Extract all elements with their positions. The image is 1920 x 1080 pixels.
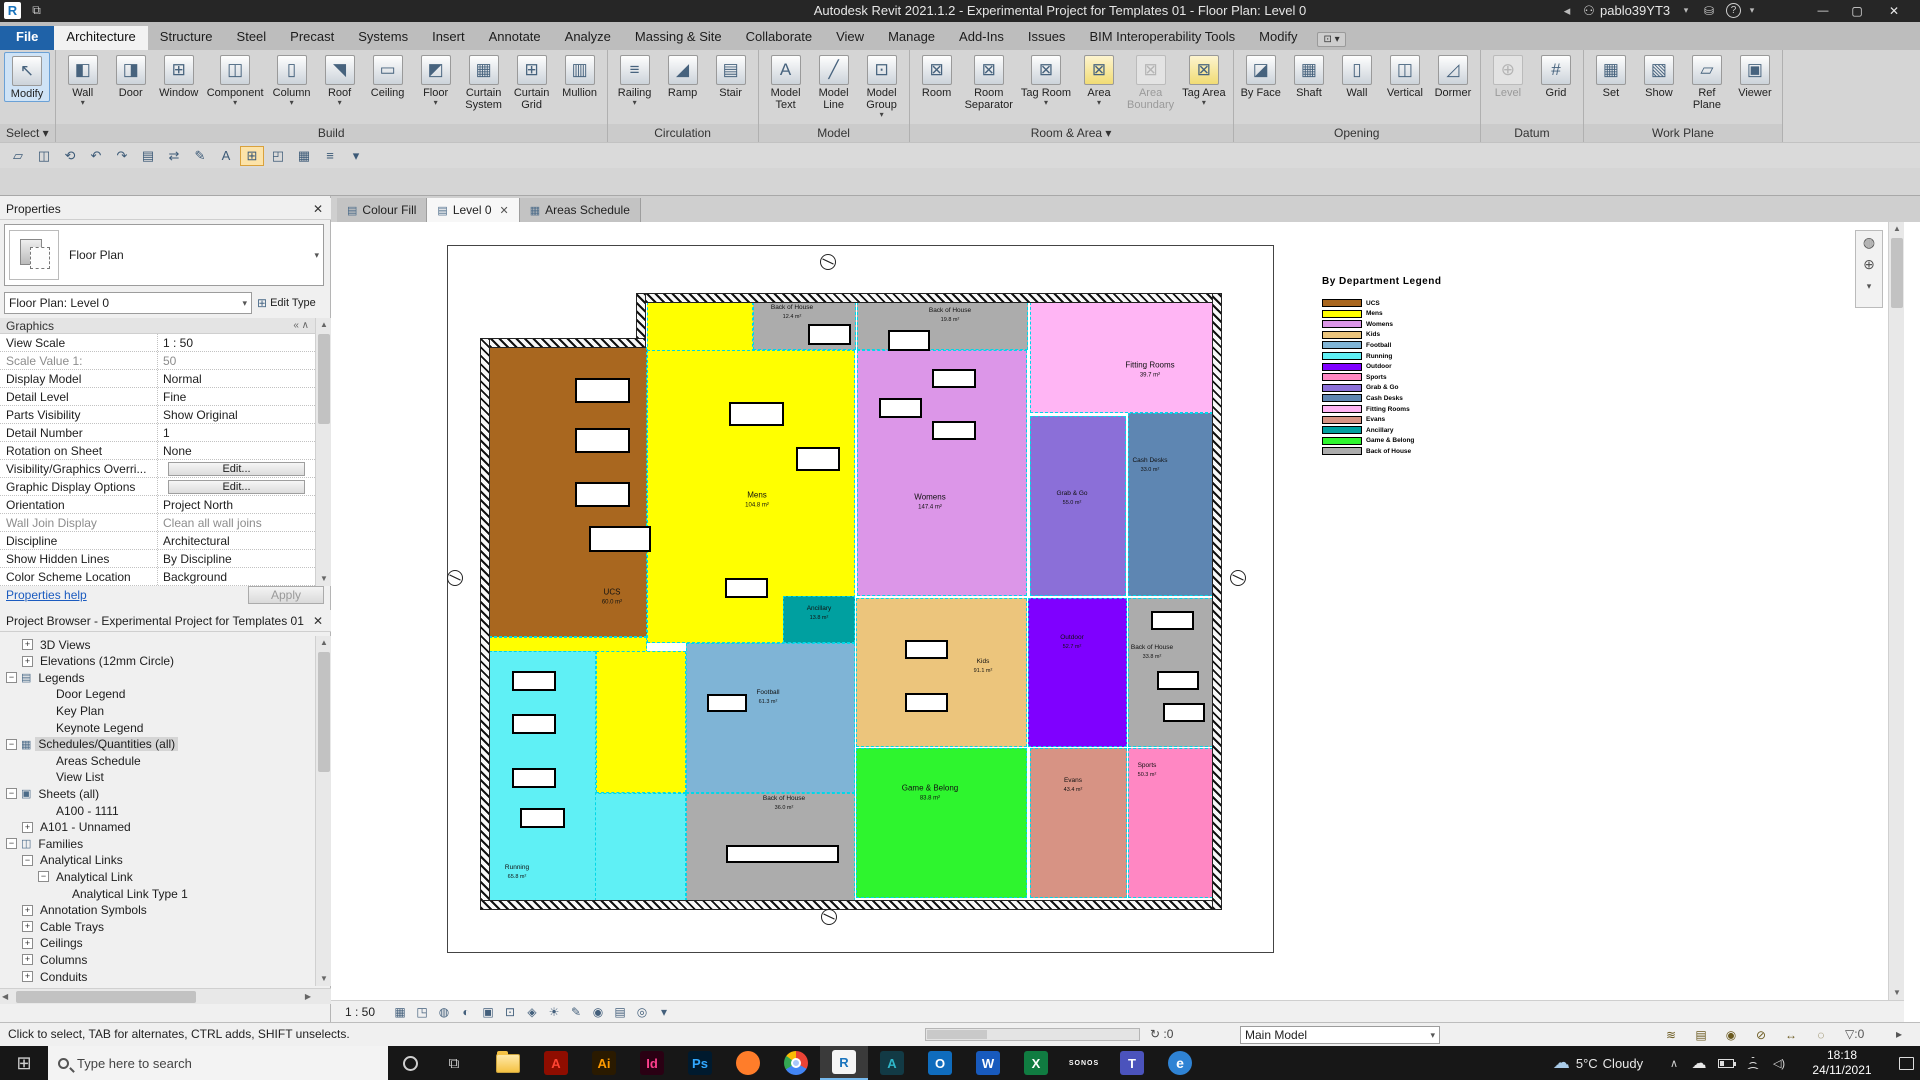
area-value: 104.8 m² bbox=[745, 502, 769, 511]
taskbar-app-firefox[interactable] bbox=[724, 1046, 772, 1080]
user-caret-icon[interactable]: ▾ bbox=[1680, 2, 1692, 19]
property-value[interactable]: Architectural bbox=[158, 532, 315, 549]
grid-button[interactable]: #Grid bbox=[1533, 52, 1579, 100]
qat-icon-7[interactable]: ✎ bbox=[188, 146, 212, 166]
property-value[interactable]: 1 : 50 bbox=[158, 334, 315, 351]
ribbon-panel-label[interactable]: Datum bbox=[1481, 124, 1583, 142]
browser-item-annotation-symbols[interactable]: +Annotation Symbols bbox=[22, 902, 337, 919]
dropdown-caret-icon[interactable]: ▾ bbox=[338, 99, 342, 106]
taskbar-app-acrobat[interactable]: A bbox=[532, 1046, 580, 1080]
edit-button[interactable]: Edit... bbox=[168, 480, 305, 494]
dropdown-caret-icon[interactable]: ▾ bbox=[1044, 99, 1048, 106]
taskbar-app-illustrator[interactable]: Ai bbox=[580, 1046, 628, 1080]
dropdown-caret-icon[interactable]: ▾ bbox=[633, 99, 637, 106]
ribbon-panel-label[interactable]: Work Plane bbox=[1584, 124, 1782, 142]
collapse-icons[interactable]: « ∧ bbox=[293, 318, 309, 334]
browser-item-cable-trays[interactable]: +Cable Trays bbox=[22, 918, 337, 935]
status-icon-5[interactable]: ◌ bbox=[1810, 1026, 1832, 1044]
fixture-rect[interactable] bbox=[888, 330, 930, 351]
area-label: Kids91.1 m² bbox=[974, 657, 993, 675]
browser-item-view-list[interactable]: View List bbox=[38, 769, 353, 786]
browser-item-analytical-link[interactable]: −Analytical Link bbox=[38, 868, 353, 885]
ribbon-tab-add-ins[interactable]: Add-Ins bbox=[947, 26, 1016, 50]
browser-item-analytical-links[interactable]: −Analytical Links bbox=[22, 852, 337, 869]
fixture-rect[interactable] bbox=[729, 402, 784, 426]
property-row: Color Scheme LocationBackground bbox=[0, 568, 315, 586]
selection-filter[interactable]: ▽:0 bbox=[1845, 1027, 1885, 1043]
battery-icon[interactable] bbox=[1712, 1046, 1740, 1080]
status-icon-2[interactable]: ◉ bbox=[1720, 1026, 1742, 1044]
edit-button[interactable]: Edit... bbox=[168, 462, 305, 476]
ribbon-panel-label[interactable]: Room & Area ▾ bbox=[910, 124, 1233, 142]
dropdown-caret-icon[interactable]: ▾ bbox=[880, 111, 884, 118]
plan-area[interactable] bbox=[596, 651, 686, 793]
scroll-down-icon[interactable]: ▼ bbox=[316, 972, 332, 986]
start-button[interactable]: ⊞ bbox=[0, 1046, 48, 1080]
taskbar-app-word[interactable]: W bbox=[964, 1046, 1012, 1080]
taskbar-app-photoshop[interactable]: Ps bbox=[676, 1046, 724, 1080]
floor-button[interactable]: ◩Floor▾ bbox=[413, 52, 459, 107]
ribbon-tab-analyze[interactable]: Analyze bbox=[553, 26, 623, 50]
scroll-left-icon[interactable]: ◀ bbox=[2, 992, 8, 1001]
cart-icon[interactable]: ⛁ bbox=[1700, 2, 1718, 19]
dormer-button[interactable]: ◿Dormer bbox=[1430, 52, 1476, 100]
ribbon-tab-steel[interactable]: Steel bbox=[225, 26, 279, 50]
expand-toggle[interactable]: − bbox=[22, 855, 33, 866]
vcb-icon-4[interactable]: ▣ bbox=[478, 1003, 498, 1021]
plan-area-football[interactable] bbox=[686, 643, 855, 793]
cloud-icon: ☁ bbox=[1553, 1053, 1570, 1073]
ribbon-tab-annotate[interactable]: Annotate bbox=[477, 26, 553, 50]
room-button[interactable]: ⊠Room bbox=[914, 52, 960, 100]
ribbon-tab-issues[interactable]: Issues bbox=[1016, 26, 1078, 50]
legend-swatch bbox=[1322, 426, 1362, 434]
legend-entry: Evans bbox=[1322, 415, 1472, 425]
railing-button[interactable]: ≡Railing▾ bbox=[612, 52, 658, 107]
expand-toggle[interactable]: + bbox=[22, 905, 33, 916]
qat-icon-11[interactable]: ▦ bbox=[292, 146, 316, 166]
expand-toggle[interactable]: + bbox=[22, 938, 33, 949]
zoom-icon[interactable]: ⊕ bbox=[1857, 253, 1881, 275]
mullion-button[interactable]: ▥Mullion bbox=[557, 52, 603, 100]
vcb-icon-2[interactable]: ◍ bbox=[434, 1003, 454, 1021]
browser-hscrollbar[interactable]: ◀▶ bbox=[0, 988, 331, 1004]
shaft-button[interactable]: ▦Shaft bbox=[1286, 52, 1332, 100]
qat-icon-10[interactable]: ◰ bbox=[266, 146, 290, 166]
qat-icon-0[interactable]: ▱ bbox=[6, 146, 30, 166]
ribbon-tab-structure[interactable]: Structure bbox=[148, 26, 225, 50]
wall-button[interactable]: ▯Wall bbox=[1334, 52, 1380, 100]
chevron-down-icon[interactable]: ▾ bbox=[314, 250, 319, 261]
cortana-button[interactable] bbox=[388, 1046, 432, 1080]
expand-toggle[interactable]: + bbox=[22, 639, 33, 650]
area-name: Womens bbox=[914, 492, 945, 504]
vcb-icon-5[interactable]: ⊡ bbox=[500, 1003, 520, 1021]
modify-pulldown[interactable]: ⊡ ▾ bbox=[1317, 32, 1345, 47]
status-icon-1[interactable]: ▤ bbox=[1690, 1026, 1712, 1044]
plan-area-cash-desks[interactable] bbox=[1128, 413, 1213, 596]
plan-area-fitting-rooms[interactable] bbox=[1030, 302, 1213, 413]
elevation-marker[interactable] bbox=[1230, 570, 1246, 586]
properties-scrollbar[interactable]: ▲▼ bbox=[315, 318, 331, 586]
browser-item-key-plan[interactable]: Key Plan bbox=[38, 702, 353, 719]
search-box[interactable]: Type here to search bbox=[48, 1046, 388, 1080]
ribbon-tab-insert[interactable]: Insert bbox=[420, 26, 477, 50]
scroll-thumb[interactable] bbox=[1891, 238, 1903, 308]
expand-toggle[interactable]: − bbox=[6, 739, 17, 750]
expand-toggle[interactable]: + bbox=[22, 971, 33, 982]
ribbon-tab-modify[interactable]: Modify bbox=[1247, 26, 1309, 50]
area-value: 147.4 m² bbox=[914, 504, 945, 513]
properties-help-link[interactable]: Properties help bbox=[6, 588, 126, 604]
volume-icon[interactable]: ◁) bbox=[1766, 1046, 1792, 1080]
door-button[interactable]: ◨Door bbox=[108, 52, 154, 100]
property-value[interactable]: None bbox=[158, 442, 315, 459]
property-value[interactable]: Project North bbox=[158, 496, 315, 513]
vcb-icon-9[interactable]: ◉ bbox=[588, 1003, 608, 1021]
view-tab-level-0[interactable]: ▤Level 0✕ bbox=[427, 198, 519, 222]
chevron-down-icon[interactable]: ▾ bbox=[242, 298, 247, 309]
qat-icon-5[interactable]: ▤ bbox=[136, 146, 160, 166]
taskbar-app-indesign[interactable]: Id bbox=[628, 1046, 676, 1080]
browser-item-conduits[interactable]: +Conduits bbox=[22, 968, 337, 985]
ceiling-button[interactable]: ▭Ceiling bbox=[365, 52, 411, 100]
ribbon-tab-systems[interactable]: Systems bbox=[346, 26, 420, 50]
legend-swatch bbox=[1322, 320, 1362, 328]
viewer-button[interactable]: ▣Viewer bbox=[1732, 52, 1778, 100]
tag-area-button[interactable]: ⊠Tag Area▾ bbox=[1179, 52, 1228, 107]
expand-toggle[interactable]: − bbox=[6, 788, 17, 799]
model-line-button[interactable]: ╱ModelLine bbox=[811, 52, 857, 112]
elevation-marker[interactable] bbox=[821, 909, 837, 925]
taskbar-app-outlook[interactable]: O bbox=[916, 1046, 964, 1080]
task-view-button[interactable]: ⧉ bbox=[432, 1046, 476, 1080]
elevation-marker[interactable] bbox=[820, 254, 836, 270]
fixture-rect[interactable] bbox=[905, 640, 948, 659]
canvas-scrollbar[interactable]: ▲▼ bbox=[1888, 222, 1904, 1000]
weather-widget[interactable]: ☁5°CCloudy bbox=[1536, 1046, 1660, 1080]
property-label: Wall Join Display bbox=[0, 514, 158, 531]
help-icon[interactable]: ? bbox=[1726, 3, 1741, 18]
close-icon[interactable]: ✕ bbox=[313, 610, 323, 632]
fixture-rect[interactable] bbox=[905, 693, 948, 712]
design-options-select[interactable]: Main Model▾ bbox=[1240, 1026, 1440, 1044]
fixture-rect[interactable] bbox=[726, 845, 839, 863]
help-caret-icon[interactable]: ▾ bbox=[1746, 2, 1758, 19]
ribbon-panel-label[interactable]: Opening bbox=[1234, 124, 1480, 142]
wall-segment[interactable] bbox=[481, 339, 645, 347]
property-value[interactable]: Fine bbox=[158, 388, 315, 405]
ribbon-tab-file[interactable]: File bbox=[0, 26, 54, 50]
legend-swatch bbox=[1322, 394, 1362, 402]
scroll-up-icon[interactable]: ▲ bbox=[1889, 222, 1905, 236]
wall-segment[interactable] bbox=[481, 339, 489, 909]
property-value[interactable]: Background bbox=[158, 568, 315, 585]
area-button[interactable]: ⊠Area▾ bbox=[1076, 52, 1122, 107]
dropdown-caret-icon[interactable]: ▾ bbox=[233, 99, 237, 106]
expand-toggle[interactable]: − bbox=[6, 672, 17, 683]
taskbar-app-chrome[interactable] bbox=[772, 1046, 820, 1080]
ribbon-panel-room-area: ⊠Room⊠RoomSeparator⊠Tag Room▾⊠Area▾⊠Area… bbox=[910, 50, 1234, 142]
area-label: Sports50.3 m² bbox=[1138, 761, 1157, 779]
fixture-rect[interactable] bbox=[575, 428, 630, 453]
plan-area-kids[interactable] bbox=[856, 598, 1027, 747]
scroll-thumb[interactable] bbox=[318, 652, 330, 772]
app-icon-indesign: Id bbox=[640, 1051, 664, 1075]
steering-wheel-icon[interactable]: ◍ bbox=[1857, 231, 1881, 253]
vcb-icon-12[interactable]: ▾ bbox=[654, 1003, 674, 1021]
property-value[interactable]: 50 bbox=[158, 352, 315, 369]
plan-area-outdoor[interactable] bbox=[1028, 598, 1127, 747]
maximize-button[interactable]: ▢ bbox=[1840, 0, 1874, 22]
tray-chevron-icon[interactable]: ∧ bbox=[1662, 1046, 1686, 1080]
qat-icon-9[interactable]: ⊞ bbox=[240, 146, 264, 166]
ribbon-tab-massing-site[interactable]: Massing & Site bbox=[623, 26, 734, 50]
component-button[interactable]: ◫Component▾ bbox=[204, 52, 267, 107]
expand-toggle[interactable]: − bbox=[6, 838, 17, 849]
taskbar-app-autocad[interactable]: A bbox=[868, 1046, 916, 1080]
view-selector[interactable]: Floor Plan: Level 0▾ bbox=[4, 292, 252, 314]
scroll-down-icon[interactable]: ▼ bbox=[1889, 986, 1905, 1000]
browser-item-a100-1111[interactable]: A100 - 1111 bbox=[38, 802, 353, 819]
curtain-system-button[interactable]: ▦CurtainSystem bbox=[461, 52, 507, 112]
window-button[interactable]: ⊞Window bbox=[156, 52, 202, 100]
app-icon-revit: R bbox=[832, 1050, 856, 1074]
area-label: Football61.3 m² bbox=[756, 688, 779, 706]
ribbon-panel-label[interactable]: Build bbox=[56, 124, 607, 142]
browser-item-schedules-quantities-all-[interactable]: −▦Schedules/Quantities (all) bbox=[6, 736, 321, 753]
stair-button[interactable]: ▤Stair bbox=[708, 52, 754, 100]
revit-application-window: R⧉Autodesk Revit 2021.1.2 - Experimental… bbox=[0, 0, 1920, 1080]
plan-area-evans[interactable] bbox=[1030, 748, 1127, 898]
property-value[interactable]: Normal bbox=[158, 370, 315, 387]
taskbar-app-teams[interactable]: T bbox=[1108, 1046, 1156, 1080]
qat-icon-3[interactable]: ↶ bbox=[84, 146, 108, 166]
expand-toggle[interactable]: + bbox=[22, 822, 33, 833]
expand-toggle[interactable]: + bbox=[22, 656, 33, 667]
model-text-button[interactable]: AModelText bbox=[763, 52, 809, 112]
nav-caret-icon[interactable]: ▾ bbox=[1857, 275, 1881, 297]
status-icon-3[interactable]: ⊘ bbox=[1750, 1026, 1772, 1044]
browser-item-label: Analytical Link bbox=[53, 870, 136, 884]
dropdown-caret-icon[interactable]: ▾ bbox=[434, 99, 438, 106]
close-button[interactable]: ✕ bbox=[1874, 0, 1914, 22]
clock-widget[interactable]: 18:1824/11/2021 bbox=[1792, 1046, 1892, 1080]
status-icon-4[interactable]: ↔ bbox=[1780, 1026, 1802, 1044]
ribbon-tab-collaborate[interactable]: Collaborate bbox=[734, 26, 825, 50]
scroll-down-icon[interactable]: ▼ bbox=[316, 572, 332, 586]
browser-item-legends[interactable]: −▤Legends bbox=[6, 669, 321, 686]
scroll-thumb[interactable] bbox=[16, 991, 196, 1003]
onedrive-icon[interactable]: ☁ bbox=[1686, 1046, 1712, 1080]
fixture-rect[interactable] bbox=[707, 694, 747, 712]
ribbon-tab-bim-interoperability-tools[interactable]: BIM Interoperability Tools bbox=[1077, 26, 1247, 50]
expand-toggle[interactable]: + bbox=[22, 954, 33, 965]
editing-requests[interactable]: ↻ :0 bbox=[1150, 1027, 1210, 1043]
qat-icon-13[interactable]: ▾ bbox=[344, 146, 368, 166]
dropdown-caret-icon[interactable]: ▾ bbox=[1097, 99, 1101, 106]
tag-room-button[interactable]: ⊠Tag Room▾ bbox=[1018, 52, 1074, 107]
by-face-button[interactable]: ◪By Face bbox=[1238, 52, 1284, 100]
browser-item-families[interactable]: −◫Families bbox=[6, 835, 321, 852]
fixture-rect[interactable] bbox=[932, 369, 976, 388]
fixture-rect[interactable] bbox=[796, 447, 840, 471]
taskbar-app-sonos[interactable]: SONOS bbox=[1060, 1046, 1108, 1080]
area-value: 36.0 m² bbox=[763, 804, 805, 812]
close-icon[interactable]: ✕ bbox=[313, 198, 323, 220]
wall-segment[interactable] bbox=[637, 294, 1221, 302]
wall-button[interactable]: ◧Wall▾ bbox=[60, 52, 106, 107]
ribbon-panel-label[interactable]: Model bbox=[759, 124, 909, 142]
browser-item-a101-unnamed[interactable]: +A101 - Unnamed bbox=[22, 819, 337, 836]
browser-item-elevations-12mm-circle-[interactable]: +Elevations (12mm Circle) bbox=[22, 653, 337, 670]
plan-area[interactable] bbox=[647, 302, 753, 352]
ribbon-panel-label[interactable]: Select ▾ bbox=[0, 124, 55, 142]
property-value[interactable]: Clean all wall joins bbox=[158, 514, 315, 531]
fixture-rect[interactable] bbox=[932, 421, 976, 440]
minimize-button[interactable]: — bbox=[1806, 0, 1840, 22]
taskbar-app-file-explorer[interactable] bbox=[484, 1046, 532, 1080]
ramp-button[interactable]: ◢Ramp bbox=[660, 52, 706, 100]
wifi-icon[interactable] bbox=[1740, 1046, 1766, 1080]
taskbar-app-excel[interactable]: X bbox=[1012, 1046, 1060, 1080]
area-name: Cash Desks bbox=[1132, 456, 1167, 466]
property-value[interactable]: By Discipline bbox=[158, 550, 315, 567]
fixture-rect[interactable] bbox=[1163, 703, 1205, 722]
browser-item-sheets-all-[interactable]: −▣Sheets (all) bbox=[6, 785, 321, 802]
legend-swatch bbox=[1322, 416, 1362, 424]
qat-icon-6[interactable]: ⇄ bbox=[162, 146, 186, 166]
vcb-icon-1[interactable]: ◳ bbox=[412, 1003, 432, 1021]
column-button[interactable]: ▯Column▾ bbox=[269, 52, 315, 107]
fixture-rect[interactable] bbox=[589, 526, 651, 552]
drawing-canvas[interactable]: UCS60.0 m²Mens104.8 m²Womens147.4 m²Back… bbox=[331, 222, 1904, 1000]
scroll-up-icon[interactable]: ▲ bbox=[316, 636, 332, 650]
browser-scrollbar[interactable]: ▲▼ bbox=[315, 636, 331, 986]
qat-icon-4[interactable]: ↷ bbox=[110, 146, 134, 166]
door-icon: ◨ bbox=[116, 55, 146, 85]
vcb-icon-0[interactable]: ▦ bbox=[390, 1003, 410, 1021]
property-row: Scale Value 1:50 bbox=[0, 352, 315, 370]
signin-arrow-icon[interactable]: ◂ bbox=[1560, 2, 1574, 19]
vcb-icon-11[interactable]: ◎ bbox=[632, 1003, 652, 1021]
ribbon-tab-view[interactable]: View bbox=[824, 26, 876, 50]
browser-item-ceilings[interactable]: +Ceilings bbox=[22, 935, 337, 952]
qat-icon-1[interactable]: ◫ bbox=[32, 146, 56, 166]
browser-item-keynote-legend[interactable]: Keynote Legend bbox=[38, 719, 353, 736]
fixture-rect[interactable] bbox=[512, 671, 556, 691]
vcb-icon-10[interactable]: ▤ bbox=[610, 1003, 630, 1021]
fixture-rect[interactable] bbox=[512, 714, 556, 734]
area-value: 19.8 m² bbox=[929, 316, 971, 324]
model-group-button[interactable]: ⊡ModelGroup▾ bbox=[859, 52, 905, 119]
qat-icon-12[interactable]: ≡ bbox=[318, 146, 342, 166]
vcb-icon-7[interactable]: ☀ bbox=[544, 1003, 564, 1021]
qat-icon-8[interactable]: A bbox=[214, 146, 238, 166]
view-tab-colour-fill[interactable]: ▤Colour Fill bbox=[337, 198, 427, 222]
fixture-rect[interactable] bbox=[512, 768, 556, 788]
view-tab-areas-schedule[interactable]: ▦Areas Schedule bbox=[520, 198, 641, 222]
time-text: 18:18 bbox=[1827, 1048, 1857, 1063]
chevron-down-icon[interactable]: ▾ bbox=[1430, 1030, 1435, 1041]
people-icon[interactable]: ⚇ bbox=[1580, 2, 1598, 19]
fixture-rect[interactable] bbox=[575, 378, 630, 403]
qat-icon-2[interactable]: ⟲ bbox=[58, 146, 82, 166]
scroll-thumb[interactable] bbox=[318, 334, 330, 424]
vcb-icon-3[interactable]: ◐ bbox=[456, 1003, 476, 1021]
fixture-rect[interactable] bbox=[1157, 671, 1199, 690]
dropdown-caret-icon[interactable]: ▾ bbox=[81, 99, 85, 106]
fixture-rect[interactable] bbox=[575, 482, 630, 507]
elevation-marker[interactable] bbox=[447, 570, 463, 586]
type-name: Floor Plan bbox=[69, 248, 124, 262]
status-expander[interactable]: ▸ bbox=[1896, 1027, 1912, 1043]
edit-type-button[interactable]: ⊞Edit Type bbox=[256, 292, 326, 314]
dropdown-caret-icon[interactable]: ▾ bbox=[290, 99, 294, 106]
property-value[interactable]: Show Original bbox=[158, 406, 315, 423]
room-separator-button[interactable]: ⊠RoomSeparator bbox=[962, 52, 1016, 112]
browser-item-label: Analytical Links bbox=[37, 853, 126, 867]
scroll-thumb[interactable] bbox=[927, 1030, 987, 1039]
curtain-grid-button[interactable]: ⊞CurtainGrid bbox=[509, 52, 555, 112]
fixture-rect[interactable] bbox=[808, 324, 851, 345]
wall-segment[interactable] bbox=[481, 901, 1221, 909]
roof-button[interactable]: ◥Roof▾ bbox=[317, 52, 363, 107]
ribbon-tab-architecture[interactable]: Architecture bbox=[54, 26, 147, 50]
browser-item-areas-schedule[interactable]: Areas Schedule bbox=[38, 752, 353, 769]
expand-toggle[interactable]: + bbox=[22, 921, 33, 932]
browser-item-3d-views[interactable]: +3D Views bbox=[22, 636, 337, 653]
vcb-icon-8[interactable]: ✎ bbox=[566, 1003, 586, 1021]
taskbar-app-edge[interactable]: e bbox=[1156, 1046, 1204, 1080]
browser-item-columns[interactable]: +Columns bbox=[22, 951, 337, 968]
notification-center-icon[interactable] bbox=[1892, 1046, 1920, 1080]
scroll-right-icon[interactable]: ▶ bbox=[305, 992, 311, 1001]
modify-button[interactable]: ↖Modify bbox=[4, 52, 50, 102]
plan-area-game-belong[interactable] bbox=[856, 748, 1027, 898]
ref-plane-button[interactable]: ▱RefPlane bbox=[1684, 52, 1730, 112]
vcb-icon-6[interactable]: ◈ bbox=[522, 1003, 542, 1021]
user-name[interactable]: pablo39YT3 bbox=[1600, 3, 1680, 20]
close-view-icon[interactable]: ✕ bbox=[500, 204, 509, 217]
view-scale[interactable]: 1 : 50 bbox=[345, 1005, 375, 1019]
ribbon-panel-label[interactable]: Circulation bbox=[608, 124, 758, 142]
ribbon-tab-precast[interactable]: Precast bbox=[278, 26, 346, 50]
vertical-button[interactable]: ◫Vertical bbox=[1382, 52, 1428, 100]
property-value[interactable]: 1 bbox=[158, 424, 315, 441]
apply-button[interactable]: Apply bbox=[248, 586, 324, 604]
status-icon-0[interactable]: ≋ bbox=[1660, 1026, 1682, 1044]
area-label: Running65.8 m² bbox=[505, 863, 529, 881]
ribbon-tab-manage[interactable]: Manage bbox=[876, 26, 947, 50]
browser-item-door-legend[interactable]: Door Legend bbox=[38, 686, 353, 703]
dropdown-caret-icon[interactable]: ▾ bbox=[1202, 99, 1206, 106]
type-selector[interactable]: Floor Plan▾ bbox=[4, 224, 324, 286]
fixture-rect[interactable] bbox=[879, 398, 922, 418]
set-button[interactable]: ▦Set bbox=[1588, 52, 1634, 100]
fixture-rect[interactable] bbox=[520, 808, 565, 828]
scroll-up-icon[interactable]: ▲ bbox=[316, 318, 332, 332]
wall-segment[interactable] bbox=[1213, 294, 1221, 909]
graphics-section-header[interactable]: Graphics« ∧ bbox=[0, 318, 315, 334]
navigation-bar[interactable]: ◍⊕▾ bbox=[1855, 230, 1883, 308]
expand-toggle[interactable]: − bbox=[38, 871, 49, 882]
taskbar-app-revit[interactable]: R bbox=[820, 1046, 868, 1080]
fixture-rect[interactable] bbox=[725, 578, 768, 598]
show-button[interactable]: ▧Show bbox=[1636, 52, 1682, 100]
area-name: Evans bbox=[1064, 776, 1083, 786]
fixture-rect[interactable] bbox=[1151, 611, 1194, 630]
